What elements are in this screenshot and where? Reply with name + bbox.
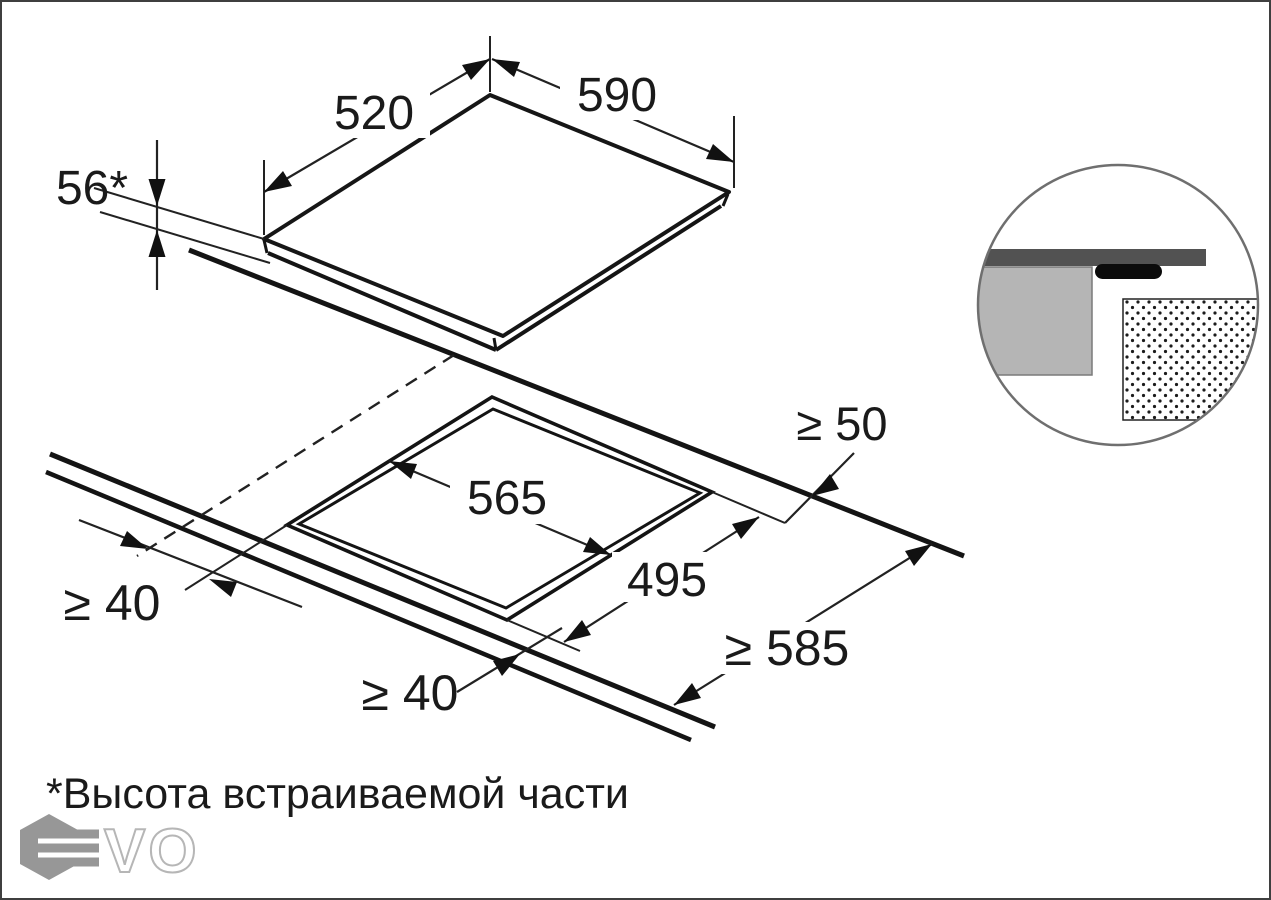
min-585-label: ≥ 585 — [725, 620, 850, 676]
arrowhead — [812, 474, 839, 496]
evo-e-slot — [38, 839, 102, 844]
dim-590-label: 590 — [577, 69, 657, 122]
footnote-text: *Высота встраиваемой части — [46, 770, 629, 818]
evo-e-slot — [38, 853, 102, 858]
cooktop-rim-tick-front — [494, 338, 496, 350]
arrowhead — [706, 144, 734, 162]
hob-body-hatched-section — [1123, 299, 1265, 420]
arrowhead — [905, 544, 932, 566]
detail-contents — [972, 249, 1265, 420]
dim-495-label: 495 — [627, 554, 707, 607]
evo-vo-text: VO — [104, 817, 200, 886]
arrowhead — [732, 517, 759, 539]
extension-cutout-right — [712, 492, 785, 523]
evo-e-arm — [38, 830, 99, 839]
evo-e-arm — [38, 858, 99, 867]
arrowhead — [674, 683, 701, 705]
arrowhead — [264, 171, 292, 192]
arrowhead — [462, 59, 490, 80]
min-50-label: ≥ 50 — [796, 397, 887, 450]
dim-56-label: 56* — [56, 162, 128, 215]
dim-520-label: 520 — [334, 87, 414, 140]
hob-glass-edge-strip — [972, 249, 1206, 266]
arrowhead — [492, 59, 520, 77]
arrowhead — [149, 230, 166, 257]
evo-e-arm — [38, 844, 99, 853]
seal-gasket — [1095, 264, 1162, 279]
arrowhead — [149, 179, 166, 206]
drawing-canvas: 520 590 56* 565 495 ≥ 50 — [0, 0, 1271, 900]
min-40-front-label: ≥ 40 — [362, 665, 459, 721]
reference-line-box-bottom — [100, 212, 270, 263]
installation-diagram-svg: 520 590 56* 565 495 ≥ 50 — [2, 2, 1269, 898]
evo-watermark-logo: VO — [20, 814, 200, 886]
dimension-min40-left: ≥ 40 — [64, 520, 302, 631]
mounting-detail-circle — [972, 165, 1265, 445]
arrowhead — [564, 620, 591, 642]
arrowhead — [209, 579, 237, 597]
min-40-left-label: ≥ 40 — [64, 575, 161, 631]
arrowhead — [120, 531, 148, 549]
dim-565-label: 565 — [467, 472, 547, 525]
